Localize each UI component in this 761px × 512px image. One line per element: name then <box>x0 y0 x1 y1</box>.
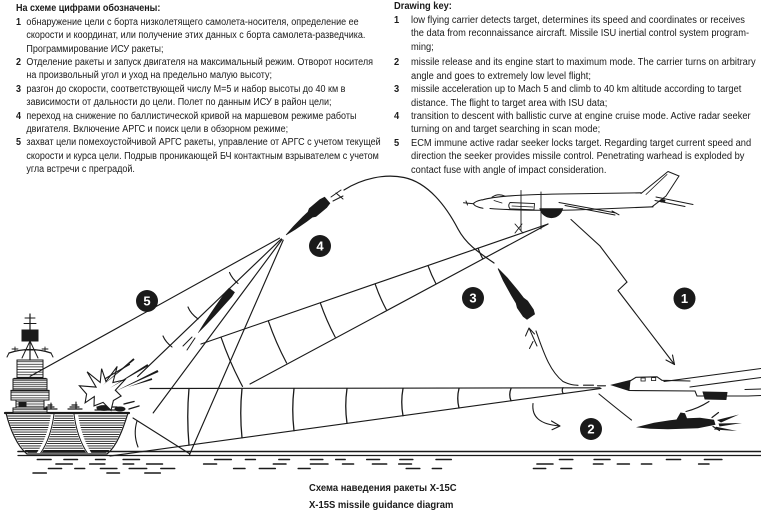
svg-text:2: 2 <box>587 422 594 437</box>
svg-text:3: 3 <box>469 291 476 306</box>
svg-text:1: 1 <box>681 291 688 306</box>
svg-text:4: 4 <box>316 239 324 254</box>
svg-text:5: 5 <box>143 294 150 309</box>
